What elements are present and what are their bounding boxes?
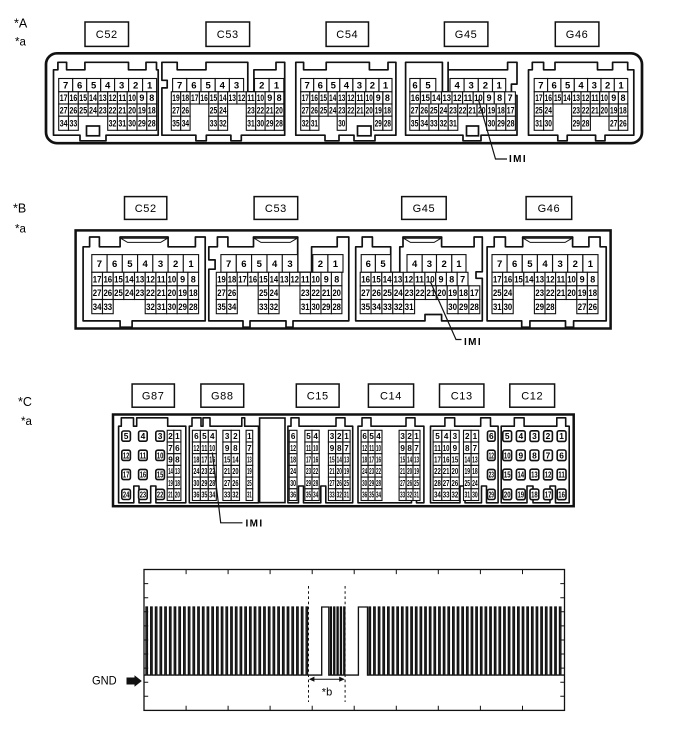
- svg-text:20: 20: [232, 467, 239, 476]
- svg-text:31: 31: [344, 491, 349, 500]
- svg-text:9: 9: [168, 456, 173, 465]
- svg-text:12: 12: [362, 444, 367, 453]
- svg-text:18: 18: [531, 489, 538, 499]
- svg-text:14: 14: [337, 456, 342, 465]
- svg-text:18: 18: [619, 105, 626, 115]
- svg-text:19: 19: [465, 467, 471, 476]
- svg-text:26: 26: [452, 479, 459, 488]
- svg-text:8: 8: [497, 93, 502, 103]
- svg-text:6: 6: [552, 81, 557, 92]
- svg-text:25: 25: [383, 288, 392, 298]
- svg-text:28: 28: [148, 119, 156, 129]
- svg-text:24: 24: [362, 467, 367, 476]
- svg-text:33: 33: [70, 119, 78, 129]
- svg-text:24: 24: [545, 105, 552, 115]
- svg-text:17: 17: [470, 288, 479, 298]
- svg-text:19: 19: [247, 467, 252, 476]
- svg-text:7: 7: [247, 444, 252, 453]
- svg-text:19: 19: [178, 288, 187, 298]
- svg-text:32: 32: [452, 491, 459, 500]
- svg-text:5: 5: [425, 81, 431, 92]
- svg-text:10: 10: [128, 93, 136, 103]
- svg-text:10: 10: [209, 444, 215, 453]
- svg-text:7: 7: [460, 274, 465, 284]
- svg-text:9: 9: [400, 444, 405, 453]
- svg-text:17: 17: [123, 470, 130, 480]
- svg-text:32: 32: [394, 302, 403, 312]
- svg-text:4: 4: [313, 432, 318, 441]
- svg-text:32: 32: [302, 119, 309, 129]
- svg-text:32: 32: [407, 491, 412, 500]
- svg-text:13: 13: [573, 93, 580, 103]
- svg-text:32: 32: [109, 119, 117, 129]
- svg-text:27: 27: [578, 302, 587, 312]
- svg-text:27: 27: [400, 479, 405, 488]
- svg-text:22: 22: [109, 105, 117, 115]
- svg-text:20: 20: [275, 105, 282, 115]
- svg-text:5: 5: [565, 81, 571, 92]
- svg-text:5: 5: [505, 431, 510, 441]
- svg-text:13: 13: [443, 93, 452, 103]
- svg-text:8: 8: [337, 444, 342, 453]
- svg-text:22: 22: [582, 105, 589, 115]
- svg-text:21: 21: [322, 288, 331, 298]
- svg-text:21: 21: [224, 467, 231, 476]
- svg-text:30: 30: [193, 479, 199, 488]
- svg-text:7: 7: [538, 81, 543, 92]
- svg-text:C54: C54: [336, 29, 358, 41]
- svg-text:15: 15: [210, 93, 217, 103]
- svg-text:23: 23: [140, 489, 147, 499]
- svg-text:C53: C53: [265, 203, 287, 215]
- svg-text:*B: *B: [13, 202, 26, 216]
- svg-text:3: 3: [330, 432, 335, 441]
- svg-text:33: 33: [210, 119, 217, 129]
- svg-text:10: 10: [567, 274, 576, 284]
- svg-text:30: 30: [128, 119, 136, 129]
- svg-text:9: 9: [486, 93, 491, 103]
- svg-text:30: 30: [338, 119, 345, 129]
- svg-text:18: 18: [182, 93, 189, 103]
- svg-text:11: 11: [247, 93, 254, 103]
- svg-text:17: 17: [535, 93, 542, 103]
- svg-text:18: 18: [175, 479, 180, 488]
- svg-text:7: 7: [168, 444, 173, 453]
- svg-text:20: 20: [332, 288, 341, 298]
- svg-text:4: 4: [542, 259, 548, 270]
- svg-text:18: 18: [193, 456, 199, 465]
- svg-text:27: 27: [361, 288, 370, 298]
- svg-text:15: 15: [329, 456, 334, 465]
- svg-text:4: 4: [344, 81, 350, 92]
- svg-text:19: 19: [448, 288, 457, 298]
- svg-text:27: 27: [302, 105, 309, 115]
- svg-text:30: 30: [545, 119, 552, 129]
- svg-text:*a: *a: [15, 37, 26, 49]
- svg-text:3: 3: [532, 431, 537, 441]
- svg-text:28: 28: [189, 302, 198, 312]
- svg-text:14: 14: [432, 93, 441, 103]
- svg-text:8: 8: [620, 93, 625, 103]
- svg-text:22: 22: [546, 288, 555, 298]
- svg-text:26: 26: [420, 105, 428, 115]
- svg-text:11: 11: [369, 444, 374, 453]
- svg-text:34: 34: [209, 491, 215, 500]
- svg-text:6: 6: [318, 81, 323, 92]
- svg-text:3: 3: [158, 259, 163, 270]
- svg-text:16: 16: [558, 489, 565, 499]
- svg-text:6: 6: [362, 432, 367, 441]
- svg-text:4: 4: [578, 81, 584, 92]
- svg-text:14: 14: [525, 274, 534, 284]
- svg-text:27: 27: [172, 105, 179, 115]
- svg-text:15: 15: [259, 274, 268, 284]
- svg-text:4: 4: [220, 81, 226, 92]
- svg-text:16: 16: [70, 93, 78, 103]
- svg-text:8: 8: [175, 456, 180, 465]
- svg-text:6: 6: [194, 432, 199, 441]
- svg-text:18: 18: [588, 288, 597, 298]
- svg-text:15: 15: [372, 274, 381, 284]
- svg-text:19: 19: [172, 93, 179, 103]
- svg-text:31: 31: [465, 491, 471, 500]
- svg-text:25: 25: [259, 288, 268, 298]
- svg-text:19: 19: [518, 489, 525, 499]
- svg-text:11: 11: [306, 444, 311, 453]
- svg-text:26: 26: [228, 288, 237, 298]
- svg-text:18: 18: [497, 105, 505, 115]
- svg-text:7: 7: [226, 259, 231, 270]
- svg-text:27: 27: [224, 479, 231, 488]
- svg-text:30: 30: [504, 302, 513, 312]
- svg-text:4: 4: [210, 432, 215, 441]
- svg-text:14: 14: [407, 456, 412, 465]
- svg-text:20: 20: [366, 105, 373, 115]
- svg-text:29: 29: [178, 302, 187, 312]
- svg-text:18: 18: [290, 456, 296, 465]
- svg-text:22: 22: [434, 467, 441, 476]
- svg-text:34: 34: [376, 491, 381, 500]
- svg-text:31: 31: [247, 491, 252, 500]
- svg-text:8: 8: [590, 274, 595, 284]
- svg-text:11: 11: [558, 470, 565, 480]
- svg-text:20: 20: [407, 467, 412, 476]
- svg-text:4: 4: [141, 431, 146, 441]
- svg-text:18: 18: [459, 288, 468, 298]
- svg-text:2: 2: [573, 259, 578, 270]
- svg-text:2: 2: [173, 259, 178, 270]
- svg-text:16: 16: [313, 456, 318, 465]
- svg-text:IMI: IMI: [464, 337, 482, 348]
- svg-text:9: 9: [518, 450, 523, 460]
- svg-text:1: 1: [414, 432, 419, 441]
- svg-text:23: 23: [136, 288, 145, 298]
- svg-text:29: 29: [375, 119, 382, 129]
- svg-text:13: 13: [338, 93, 345, 103]
- svg-text:11: 11: [301, 274, 310, 284]
- svg-text:21: 21: [356, 105, 363, 115]
- svg-text:24: 24: [219, 105, 226, 115]
- svg-text:1: 1: [456, 259, 462, 270]
- svg-text:19: 19: [375, 105, 382, 115]
- svg-text:29: 29: [322, 302, 331, 312]
- svg-text:25: 25: [247, 479, 252, 488]
- svg-text:23: 23: [338, 105, 345, 115]
- svg-text:33: 33: [400, 491, 405, 500]
- svg-text:19: 19: [168, 479, 173, 488]
- svg-text:21: 21: [443, 467, 450, 476]
- svg-text:28: 28: [209, 479, 215, 488]
- svg-text:35: 35: [411, 119, 419, 129]
- svg-text:22: 22: [416, 288, 425, 298]
- svg-text:8: 8: [334, 274, 339, 284]
- svg-text:18: 18: [384, 105, 391, 115]
- svg-text:20: 20: [128, 105, 136, 115]
- svg-text:33: 33: [383, 302, 392, 312]
- svg-text:4: 4: [143, 259, 149, 270]
- svg-text:13: 13: [472, 456, 478, 465]
- svg-text:27: 27: [60, 105, 68, 115]
- svg-text:14: 14: [89, 93, 97, 103]
- svg-text:33: 33: [259, 302, 268, 312]
- svg-text:1: 1: [618, 81, 624, 92]
- svg-text:8: 8: [191, 274, 196, 284]
- svg-text:5: 5: [124, 431, 129, 441]
- svg-text:10: 10: [376, 444, 381, 453]
- svg-text:13: 13: [99, 93, 107, 103]
- svg-text:29: 29: [306, 479, 311, 488]
- svg-text:23: 23: [489, 470, 495, 480]
- svg-text:3: 3: [592, 81, 597, 92]
- svg-text:22: 22: [257, 105, 264, 115]
- svg-text:2: 2: [133, 81, 138, 92]
- svg-text:7: 7: [305, 81, 310, 92]
- svg-text:2: 2: [465, 432, 470, 441]
- svg-text:29: 29: [573, 119, 580, 129]
- svg-text:C53: C53: [217, 29, 239, 41]
- svg-text:25: 25: [344, 479, 349, 488]
- svg-text:19: 19: [344, 467, 349, 476]
- svg-text:1: 1: [383, 81, 389, 92]
- svg-text:3: 3: [469, 81, 474, 92]
- svg-text:15: 15: [157, 470, 164, 480]
- svg-text:11: 11: [415, 274, 424, 284]
- svg-text:13: 13: [136, 274, 145, 284]
- svg-text:31: 31: [414, 491, 419, 500]
- svg-text:35: 35: [217, 302, 226, 312]
- svg-text:24: 24: [504, 288, 513, 298]
- svg-text:28: 28: [384, 119, 391, 129]
- svg-text:31: 31: [493, 302, 502, 312]
- svg-text:4: 4: [105, 81, 111, 92]
- svg-text:20: 20: [337, 467, 342, 476]
- svg-text:30: 30: [488, 119, 496, 129]
- svg-text:1: 1: [559, 431, 564, 441]
- svg-text:14: 14: [383, 274, 392, 284]
- svg-text:26: 26: [182, 105, 189, 115]
- svg-text:34: 34: [182, 119, 189, 129]
- svg-text:3: 3: [234, 81, 239, 92]
- svg-text:23: 23: [99, 105, 107, 115]
- svg-text:28: 28: [507, 119, 515, 129]
- svg-text:23: 23: [301, 288, 310, 298]
- svg-text:25: 25: [320, 105, 327, 115]
- svg-text:9: 9: [376, 93, 381, 103]
- svg-text:2: 2: [407, 432, 412, 441]
- svg-text:19: 19: [610, 105, 617, 115]
- svg-text:21: 21: [468, 105, 476, 115]
- svg-text:18: 18: [362, 456, 367, 465]
- svg-text:11: 11: [157, 274, 166, 284]
- svg-text:2: 2: [337, 432, 342, 441]
- svg-text:15: 15: [554, 93, 561, 103]
- svg-text:33: 33: [329, 491, 334, 500]
- svg-text:15: 15: [79, 93, 87, 103]
- svg-text:9: 9: [611, 93, 616, 103]
- svg-text:13: 13: [344, 456, 349, 465]
- svg-text:30: 30: [311, 302, 320, 312]
- svg-text:17: 17: [545, 489, 552, 499]
- svg-text:C52: C52: [96, 29, 118, 41]
- svg-text:6: 6: [175, 444, 180, 453]
- svg-text:34: 34: [420, 119, 428, 129]
- svg-text:20: 20: [452, 467, 459, 476]
- svg-text:6: 6: [241, 259, 246, 270]
- svg-text:16: 16: [411, 93, 420, 103]
- svg-text:34: 34: [228, 302, 237, 312]
- svg-text:IMI: IMI: [509, 154, 527, 165]
- svg-text:17: 17: [93, 274, 102, 284]
- svg-text:17: 17: [306, 456, 311, 465]
- svg-text:12: 12: [238, 93, 245, 103]
- svg-text:10: 10: [601, 93, 608, 103]
- svg-text:9: 9: [453, 444, 458, 453]
- svg-text:19: 19: [217, 274, 226, 284]
- svg-text:23: 23: [247, 105, 254, 115]
- svg-text:*b: *b: [322, 687, 332, 699]
- svg-text:9: 9: [267, 93, 272, 103]
- svg-text:20: 20: [601, 105, 608, 115]
- svg-text:3: 3: [453, 432, 458, 441]
- svg-text:27: 27: [411, 105, 419, 115]
- svg-text:G45: G45: [413, 203, 436, 215]
- svg-text:17: 17: [201, 456, 207, 465]
- svg-text:2: 2: [318, 259, 323, 270]
- svg-text:8: 8: [465, 444, 470, 453]
- svg-text:6: 6: [112, 259, 117, 270]
- svg-text:24: 24: [125, 288, 134, 298]
- svg-text:16: 16: [200, 93, 207, 103]
- svg-text:24: 24: [193, 467, 199, 476]
- svg-text:33: 33: [430, 119, 438, 129]
- svg-text:31: 31: [157, 302, 166, 312]
- svg-text:16: 16: [311, 93, 318, 103]
- svg-text:9: 9: [438, 274, 443, 284]
- svg-text:4: 4: [412, 259, 418, 270]
- svg-text:2: 2: [441, 259, 446, 270]
- svg-text:24: 24: [440, 105, 448, 115]
- svg-text:10: 10: [157, 450, 164, 460]
- svg-text:C52: C52: [135, 203, 157, 215]
- svg-text:28: 28: [546, 302, 555, 312]
- svg-text:22: 22: [459, 105, 467, 115]
- svg-text:32: 32: [440, 119, 448, 129]
- svg-text:26: 26: [103, 288, 112, 298]
- svg-text:11: 11: [118, 93, 126, 103]
- svg-text:30: 30: [257, 119, 264, 129]
- svg-text:14: 14: [270, 274, 279, 284]
- svg-text:8: 8: [233, 444, 238, 453]
- svg-text:5: 5: [527, 259, 533, 270]
- svg-text:C15: C15: [307, 391, 329, 403]
- svg-text:11: 11: [591, 93, 598, 103]
- svg-text:29: 29: [138, 119, 146, 129]
- svg-text:GND: GND: [92, 674, 117, 688]
- svg-text:2: 2: [370, 81, 375, 92]
- svg-text:27: 27: [93, 288, 102, 298]
- svg-text:26: 26: [372, 288, 381, 298]
- svg-text:35: 35: [361, 302, 370, 312]
- svg-text:17: 17: [493, 274, 502, 284]
- svg-text:4: 4: [376, 432, 381, 441]
- svg-text:31: 31: [311, 119, 318, 129]
- svg-text:25: 25: [210, 105, 217, 115]
- svg-text:7: 7: [473, 444, 478, 453]
- svg-text:13: 13: [175, 467, 180, 476]
- svg-text:32: 32: [337, 491, 342, 500]
- svg-text:16: 16: [376, 456, 381, 465]
- svg-text:13: 13: [414, 456, 419, 465]
- svg-text:16: 16: [361, 274, 370, 284]
- svg-text:24: 24: [290, 467, 296, 476]
- svg-text:15: 15: [224, 456, 231, 465]
- svg-text:31: 31: [405, 302, 414, 312]
- svg-text:14: 14: [518, 470, 525, 480]
- svg-text:19: 19: [138, 105, 146, 115]
- svg-text:21: 21: [118, 105, 126, 115]
- svg-text:7: 7: [414, 444, 419, 453]
- svg-text:12: 12: [545, 470, 552, 480]
- svg-text:25: 25: [414, 479, 419, 488]
- svg-text:7: 7: [497, 259, 502, 270]
- svg-text:24: 24: [329, 105, 336, 115]
- svg-text:9: 9: [330, 444, 335, 453]
- svg-text:13: 13: [247, 456, 252, 465]
- svg-text:35: 35: [306, 491, 311, 500]
- svg-text:G45: G45: [455, 29, 478, 41]
- svg-text:17: 17: [60, 93, 68, 103]
- svg-text:17: 17: [507, 105, 515, 115]
- svg-text:21: 21: [591, 105, 598, 115]
- svg-text:9: 9: [139, 93, 144, 103]
- svg-text:9: 9: [324, 274, 329, 284]
- svg-text:14: 14: [465, 456, 471, 465]
- svg-text:20: 20: [168, 288, 177, 298]
- svg-text:33: 33: [103, 302, 112, 312]
- svg-text:C12: C12: [521, 391, 543, 403]
- svg-text:11: 11: [356, 93, 363, 103]
- svg-text:G87: G87: [142, 391, 165, 403]
- svg-text:15: 15: [514, 274, 523, 284]
- svg-text:15: 15: [452, 456, 459, 465]
- svg-text:22: 22: [146, 288, 155, 298]
- svg-text:29: 29: [266, 119, 273, 129]
- svg-text:24: 24: [123, 489, 130, 499]
- svg-text:26: 26: [619, 119, 626, 129]
- svg-text:5: 5: [202, 432, 207, 441]
- svg-text:15: 15: [114, 274, 123, 284]
- svg-text:19: 19: [414, 467, 419, 476]
